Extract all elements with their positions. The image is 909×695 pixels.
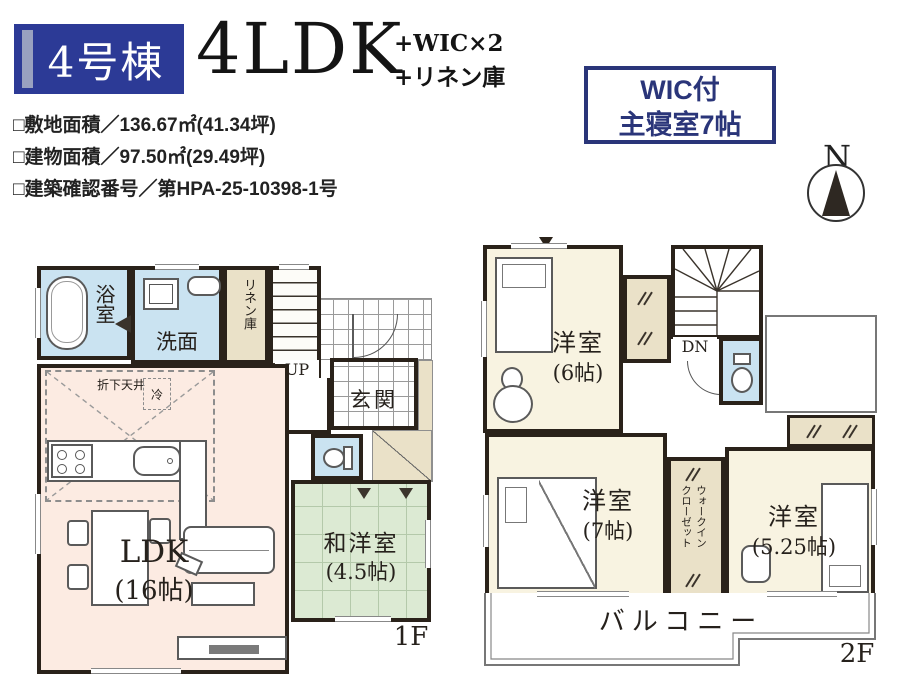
- kitchen-counter-return: [179, 440, 207, 540]
- unit-number-label: 4号棟: [14, 29, 184, 90]
- toilet-tank-icon: [733, 353, 751, 365]
- room-japanese-western: 和洋室 (4.5帖): [291, 480, 431, 622]
- sink-icon: [187, 276, 221, 296]
- bathtub-inner-line: [51, 281, 83, 343]
- room-bedroom-525: 洋室 (5.25帖): [725, 447, 875, 597]
- closet-hanger-mark: [399, 488, 413, 499]
- window: [481, 301, 487, 357]
- window: [425, 520, 431, 568]
- hall2-door-arc: [687, 361, 721, 395]
- room-bedroom-7: 洋室 (7帖): [485, 433, 667, 597]
- unit-box-accent-bar: [22, 30, 33, 88]
- wic-feature-badge: WIC付 主寝室7帖: [584, 66, 776, 144]
- refrigerator-space: 冷: [143, 378, 171, 410]
- window: [155, 264, 199, 270]
- balcony-label: バルコニー: [571, 601, 791, 638]
- layout-extra-wic: +WIC×2: [394, 30, 503, 57]
- tv-board: [177, 636, 287, 660]
- ldk-size-label: (16帖): [87, 570, 221, 607]
- floor1-label: 1F: [387, 622, 435, 652]
- site-area-line: □敷地面積／136.67㎡(41.34坪): [13, 110, 276, 137]
- room-toilet-1f: [311, 434, 363, 480]
- room-ldk: 折下天井 冷: [37, 364, 289, 674]
- window: [91, 668, 181, 674]
- stairs-fan-lines: [675, 249, 759, 335]
- floor2-plan: 洋室 (6帖) DN: [481, 241, 881, 671]
- wic2f-label-line2: クローゼット: [679, 485, 694, 575]
- floor1-plan: 浴室 洗面 リネン庫 UP 玄関 ウォークイン クローゼット: [35, 258, 435, 682]
- bedroom525-label: 洋室: [739, 497, 849, 532]
- floorplan-page: 4号棟 4LDK +WIC×2 +リネン庫 □敷地面積／136.67㎡(41.3…: [0, 0, 909, 695]
- entrance-porch: [372, 430, 432, 482]
- pillow-icon: [502, 264, 546, 288]
- unit-number-box: 4号棟: [14, 24, 184, 94]
- bedroom6-label: 洋室: [533, 323, 623, 358]
- entrance-door-leaf: [352, 314, 354, 358]
- compass-icon: [807, 164, 865, 222]
- japanese-western-size-label: (4.5帖): [295, 556, 427, 586]
- badge-line-2: 主寝室7帖: [588, 108, 772, 143]
- roof-over-porch: [765, 315, 877, 413]
- entrance-label: 玄関: [334, 384, 414, 414]
- window: [35, 494, 41, 554]
- bedroom7-size-label: (7帖): [553, 515, 663, 545]
- dining-chair: [67, 520, 89, 546]
- toilet-tank-icon: [343, 446, 353, 470]
- stairs-down: [671, 245, 763, 339]
- closet-hanger-mark: [357, 488, 371, 499]
- toilet-bowl-icon: [323, 448, 345, 468]
- wic2f-label: ウォークイン クローゼット: [679, 485, 709, 575]
- room-entrance: 玄関: [330, 358, 418, 430]
- floor2-label: 2F: [833, 639, 881, 669]
- layout-extra-linen: +リネン庫: [394, 58, 505, 92]
- toilet-bowl-icon: [731, 367, 753, 393]
- washroom-label: 洗面: [135, 326, 219, 356]
- washer-icon: [143, 278, 179, 310]
- window: [511, 243, 567, 249]
- linen-closet-label: リネン庫: [239, 278, 258, 330]
- window: [483, 495, 489, 547]
- room-walkin-closet-2f: ウォークイン クローゼット: [667, 457, 725, 597]
- ldk-label: LDK: [97, 534, 211, 570]
- window: [279, 264, 309, 270]
- room-washroom: 洗面: [131, 266, 223, 364]
- badge-line-1: WIC付: [588, 73, 772, 108]
- wic2f-label-line1: ウォークイン: [694, 485, 709, 575]
- room-linen-closet: リネン庫: [223, 266, 269, 364]
- vase-body-icon: [493, 385, 533, 423]
- compass-needle-icon: [822, 170, 850, 216]
- balcony-sliding-door: [537, 591, 629, 597]
- room-toilet-2f: [719, 337, 763, 405]
- kitchen-sink-icon: [133, 446, 181, 476]
- room-bathroom: 浴室: [37, 266, 131, 360]
- balcony-sliding-door: [767, 591, 837, 597]
- stove-icon: [51, 444, 93, 478]
- bathtub-icon: [46, 276, 88, 350]
- window: [871, 489, 877, 545]
- room-bedroom-6: 洋室 (6帖): [483, 245, 623, 433]
- bedroom6-size-label: (6帖): [533, 357, 623, 387]
- refrigerator-label: 冷: [144, 386, 170, 403]
- layout-title: 4LDK: [196, 8, 403, 90]
- pillow-icon: [829, 565, 861, 587]
- japanese-western-label: 和洋室: [295, 524, 427, 558]
- closet-bedroom525: [787, 415, 875, 447]
- dining-chair: [67, 564, 89, 590]
- closet-bedroom6: [623, 275, 671, 363]
- permit-number-line: □建築確認番号／第HPA-25-10398-1号: [13, 174, 338, 201]
- washer-door-icon: [149, 284, 173, 304]
- stairs-down-label: DN: [673, 337, 717, 356]
- bedroom7-label: 洋室: [553, 481, 663, 516]
- bedroom525-size-label: (5.25帖): [729, 531, 859, 561]
- pillow-icon: [505, 487, 527, 523]
- building-area-line: □建物面積／97.50㎡(29.49坪): [13, 142, 265, 169]
- window: [35, 288, 41, 338]
- window: [335, 616, 391, 622]
